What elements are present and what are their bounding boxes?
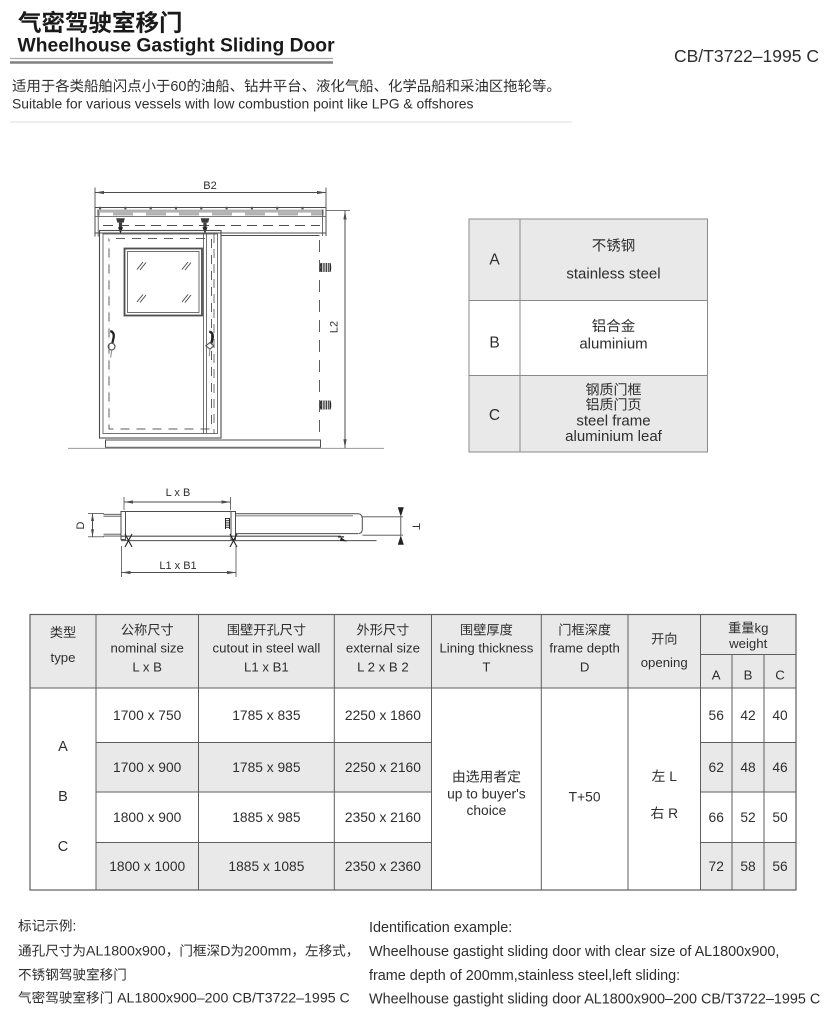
svg-text:cutout in steel wall: cutout in steel wall	[213, 641, 321, 656]
svg-text:AL1800x900–200 CB/T3722–1995 C: AL1800x900–200 CB/T3722–1995 C	[117, 991, 350, 1007]
svg-text:2350 x 2360: 2350 x 2360	[345, 859, 421, 874]
svg-text:1700 x 900: 1700 x 900	[113, 760, 182, 775]
svg-text:46: 46	[772, 760, 788, 775]
svg-text:L1 x B1: L1 x B1	[159, 560, 196, 572]
svg-text:L: L	[669, 769, 677, 784]
svg-text:C: C	[489, 407, 500, 424]
svg-text:Suitable for various vessels w: Suitable for various vessels with low co…	[12, 96, 473, 112]
svg-text:1800 x 1000: 1800 x 1000	[109, 859, 185, 874]
svg-text:R: R	[668, 806, 678, 821]
svg-text:2350 x 2160: 2350 x 2160	[345, 810, 421, 825]
svg-text:56: 56	[772, 859, 788, 874]
svg-text:L2: L2	[329, 321, 341, 333]
svg-text:72: 72	[709, 859, 724, 874]
svg-text:Wheelhouse Gastight Sliding Do: Wheelhouse Gastight Sliding Door	[18, 36, 336, 57]
svg-text:C: C	[58, 839, 68, 855]
svg-text:Wheelhouse gastight sliding do: Wheelhouse gastight sliding door with cl…	[369, 944, 779, 960]
svg-text:external size: external size	[346, 641, 420, 656]
svg-text:kg: kg	[755, 621, 769, 636]
svg-text:1800 x 900: 1800 x 900	[113, 810, 182, 825]
svg-text:A: A	[58, 739, 68, 755]
svg-text:C: C	[775, 668, 785, 683]
svg-text:L 2 x B 2: L 2 x B 2	[357, 660, 409, 675]
svg-text:2250 x 1860: 2250 x 1860	[345, 708, 421, 723]
svg-text:48: 48	[740, 760, 756, 775]
svg-text:1785 x 985: 1785 x 985	[232, 760, 301, 775]
svg-text:L x B: L x B	[132, 660, 162, 675]
svg-text:CB/T3722–1995 C: CB/T3722–1995 C	[674, 46, 819, 66]
svg-text:62: 62	[709, 760, 724, 775]
svg-text:aluminium: aluminium	[579, 336, 647, 353]
svg-text:steel frame: steel frame	[576, 413, 650, 430]
svg-text:frame depth of 200mm,stainless: frame depth of 200mm,stainless steel,lef…	[369, 968, 680, 984]
svg-text:AL1800x900: AL1800x900	[86, 944, 166, 960]
svg-text:opening: opening	[641, 655, 688, 670]
svg-text:L x B: L x B	[166, 487, 191, 499]
svg-text:40: 40	[772, 708, 788, 723]
svg-text:T: T	[482, 660, 490, 675]
svg-text:D: D	[75, 521, 87, 529]
svg-text:B2: B2	[203, 180, 216, 192]
svg-text:aluminium leaf: aluminium leaf	[565, 428, 663, 445]
svg-text:D: D	[580, 660, 590, 675]
svg-text:Identification example:: Identification example:	[369, 920, 512, 936]
svg-text:60: 60	[170, 79, 186, 95]
svg-text::: :	[72, 919, 76, 935]
svg-text:1885 x 985: 1885 x 985	[232, 810, 301, 825]
svg-text:2250 x 2160: 2250 x 2160	[345, 760, 421, 775]
svg-text:1885 x 1085: 1885 x 1085	[228, 859, 304, 874]
svg-text:up to buyer's: up to buyer's	[447, 787, 526, 802]
svg-text:B: B	[58, 789, 68, 805]
svg-text:B: B	[744, 668, 753, 683]
svg-text:frame depth: frame depth	[549, 641, 619, 656]
svg-text:stainless steel: stainless steel	[566, 266, 660, 283]
svg-text:D: D	[220, 944, 230, 960]
svg-text:200mm: 200mm	[244, 944, 291, 960]
svg-text:weight: weight	[728, 636, 767, 651]
svg-text:type: type	[51, 650, 76, 665]
svg-text:A: A	[712, 668, 721, 683]
svg-text:choice: choice	[466, 803, 506, 818]
svg-text:L1 x B1: L1 x B1	[244, 660, 289, 675]
svg-text:T+50: T+50	[569, 790, 601, 805]
svg-text:Lining thickness: Lining thickness	[439, 641, 533, 656]
svg-text:56: 56	[709, 708, 725, 723]
svg-text:nominal size: nominal size	[111, 641, 184, 656]
svg-text:B: B	[489, 335, 499, 352]
svg-text:T: T	[410, 523, 422, 530]
svg-text:50: 50	[772, 810, 788, 825]
svg-text:Wheelhouse gastight sliding do: Wheelhouse gastight sliding door AL1800x…	[369, 992, 820, 1008]
svg-text:42: 42	[740, 708, 755, 723]
svg-text:1700 x 750: 1700 x 750	[113, 708, 182, 723]
svg-text:66: 66	[709, 810, 725, 825]
svg-text:A: A	[489, 252, 500, 269]
svg-text:52: 52	[740, 810, 755, 825]
svg-text:1785 x 835: 1785 x 835	[232, 708, 301, 723]
svg-text:58: 58	[740, 859, 756, 874]
